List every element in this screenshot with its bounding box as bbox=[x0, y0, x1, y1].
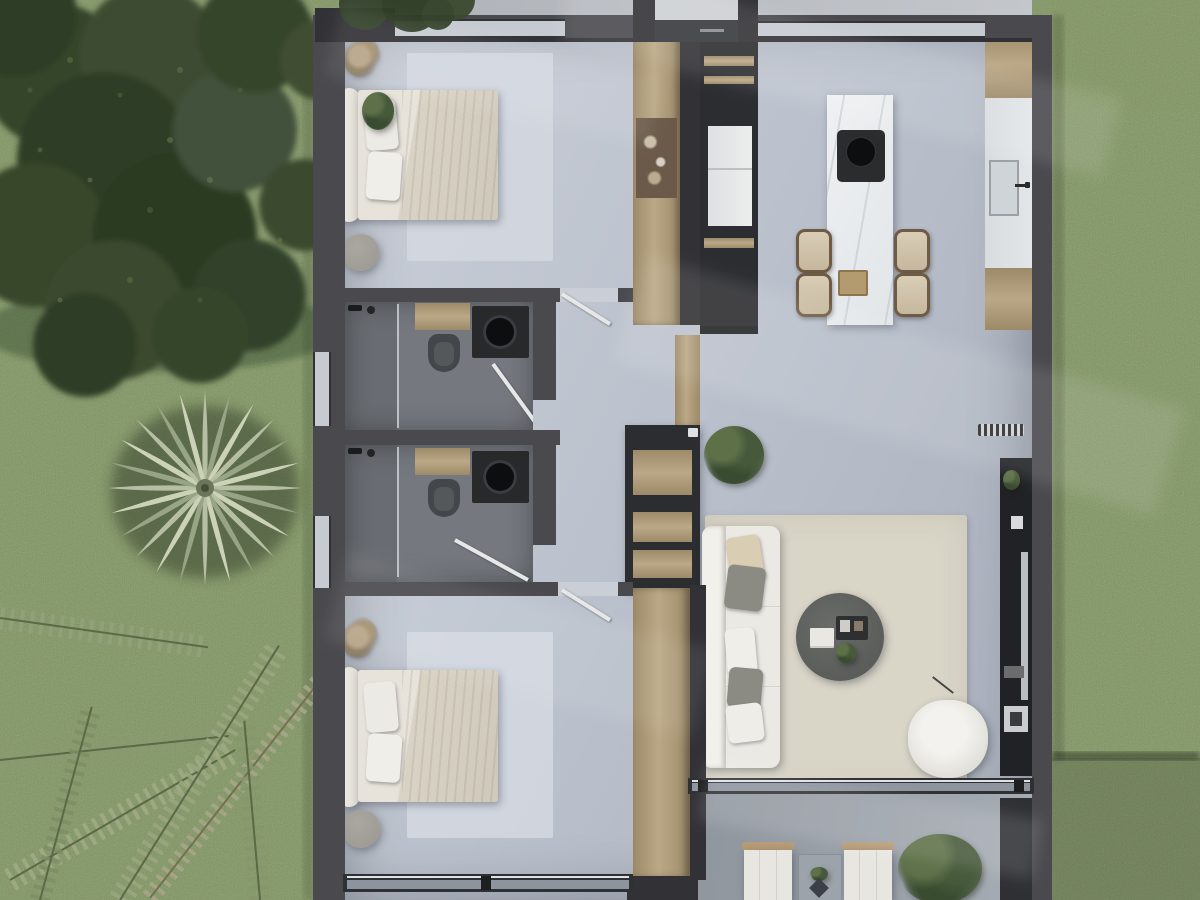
bathroom2 bbox=[345, 445, 533, 582]
tree-overhang bbox=[330, 0, 550, 40]
bedroom2-wardrobe bbox=[633, 588, 690, 878]
pantry-cap bbox=[700, 326, 758, 334]
hall-plant bbox=[704, 426, 764, 484]
bedroom2-dried-plant bbox=[340, 616, 378, 658]
tray-item bbox=[854, 621, 863, 631]
rattan-stool bbox=[796, 229, 832, 273]
bedroom1-pouf bbox=[342, 234, 379, 271]
console-shelf-wood bbox=[633, 512, 692, 542]
lounger-cushion bbox=[844, 850, 892, 900]
left-exterior-wall bbox=[313, 15, 345, 900]
counter-wood-bottom bbox=[985, 268, 1032, 330]
console-frame-art bbox=[1010, 712, 1022, 726]
cooktop bbox=[837, 130, 885, 182]
bedroom2-pouf bbox=[342, 810, 380, 848]
right-exterior-wall bbox=[1032, 15, 1052, 900]
console-shelf-wood bbox=[633, 550, 692, 578]
bathroom1-door bbox=[493, 364, 533, 426]
sun-lounger bbox=[842, 842, 894, 900]
bedroom2-duvet bbox=[402, 670, 498, 802]
lounger-frame bbox=[742, 842, 794, 850]
console-decor bbox=[688, 428, 698, 437]
kitchen-window bbox=[758, 21, 985, 38]
rattan-stool bbox=[894, 273, 930, 317]
terrace-bush bbox=[898, 834, 982, 900]
refrigerator bbox=[708, 126, 752, 226]
terrace-table bbox=[798, 854, 842, 900]
bathroom1 bbox=[345, 302, 533, 432]
door-handle bbox=[1014, 780, 1024, 792]
console-plant bbox=[1003, 470, 1020, 490]
lounger-cushion bbox=[744, 850, 792, 900]
bathroom2-window bbox=[313, 516, 331, 588]
door-handle bbox=[698, 780, 708, 792]
rattan-stool bbox=[894, 229, 930, 273]
pantry-shelf bbox=[704, 76, 754, 84]
kitchen-pantry bbox=[700, 32, 758, 330]
bathroom1-door-svg bbox=[345, 302, 533, 432]
living-sliding-door[interactable] bbox=[688, 778, 1034, 794]
sofa bbox=[702, 526, 780, 768]
console-decor bbox=[1004, 666, 1024, 678]
bedroom2-pillow bbox=[363, 681, 399, 734]
media-console bbox=[1000, 458, 1032, 776]
entry-doormat bbox=[655, 0, 738, 20]
armchair bbox=[908, 700, 988, 778]
entry-wall bbox=[633, 0, 655, 42]
sun-lounger bbox=[742, 842, 794, 900]
bedroom1-green-plant bbox=[362, 92, 394, 130]
bedroom1-duvet bbox=[402, 90, 498, 220]
faucet-base bbox=[1025, 182, 1030, 188]
bedroom2-pillow bbox=[365, 733, 402, 783]
bathroom1-window bbox=[313, 352, 331, 426]
counter-sink bbox=[989, 160, 1019, 216]
core-wall bbox=[680, 32, 700, 325]
terrace-storage-block bbox=[1000, 798, 1032, 900]
entry-wall bbox=[738, 0, 758, 42]
entry-door-handle bbox=[700, 29, 724, 32]
pantry-shelf bbox=[704, 56, 754, 66]
decor-pyramid bbox=[809, 878, 829, 898]
bedroom1-pillow bbox=[365, 151, 402, 201]
pantry-shelf bbox=[704, 238, 754, 248]
sofa-cushion bbox=[723, 564, 766, 612]
bottom-wall-block bbox=[627, 876, 690, 900]
book-stack bbox=[810, 628, 834, 646]
bathroom-divider-wall bbox=[315, 430, 560, 445]
counter-steel bbox=[985, 98, 1032, 268]
console-decor bbox=[1011, 516, 1023, 529]
island-tray bbox=[838, 270, 868, 296]
bathroom2-right-wall bbox=[533, 445, 556, 545]
leafy-tree bbox=[0, 0, 360, 397]
bedroom2-door-svg bbox=[556, 584, 626, 628]
bedroom2-bed bbox=[358, 670, 498, 802]
bathroom2-door-svg bbox=[345, 445, 533, 582]
hall-console-shelf bbox=[625, 425, 700, 590]
kitchen-island bbox=[827, 95, 893, 325]
door-handle bbox=[481, 876, 491, 890]
floor-plan-render bbox=[0, 0, 1200, 900]
table-plant bbox=[836, 643, 856, 663]
wardrobe-back-wall bbox=[690, 585, 706, 880]
tray-item bbox=[840, 620, 850, 632]
sofa-cushion bbox=[725, 702, 765, 744]
bedroom2-door bbox=[562, 590, 610, 620]
cooktop-burner bbox=[845, 136, 877, 168]
bathroom1-right-wall bbox=[533, 295, 556, 400]
bedroom1-wardrobe bbox=[633, 32, 680, 325]
bedroom1-door bbox=[562, 294, 610, 324]
entry-door[interactable] bbox=[655, 20, 738, 42]
lounger-frame bbox=[842, 842, 894, 850]
fan-palm-tree bbox=[108, 391, 302, 585]
wardrobe-art-inset bbox=[636, 118, 677, 198]
coffee-table bbox=[796, 593, 884, 681]
console-frame bbox=[1004, 706, 1028, 732]
rattan-stool bbox=[796, 273, 832, 317]
decor-tray bbox=[836, 616, 868, 640]
console-shelf-wood bbox=[633, 450, 692, 495]
vent-grille bbox=[978, 424, 1024, 436]
bedroom1-door-svg bbox=[556, 288, 626, 332]
bathroom2-door bbox=[455, 540, 528, 580]
bedroom2-sliding-door[interactable] bbox=[343, 874, 633, 892]
hall-wood-transition bbox=[675, 335, 700, 425]
